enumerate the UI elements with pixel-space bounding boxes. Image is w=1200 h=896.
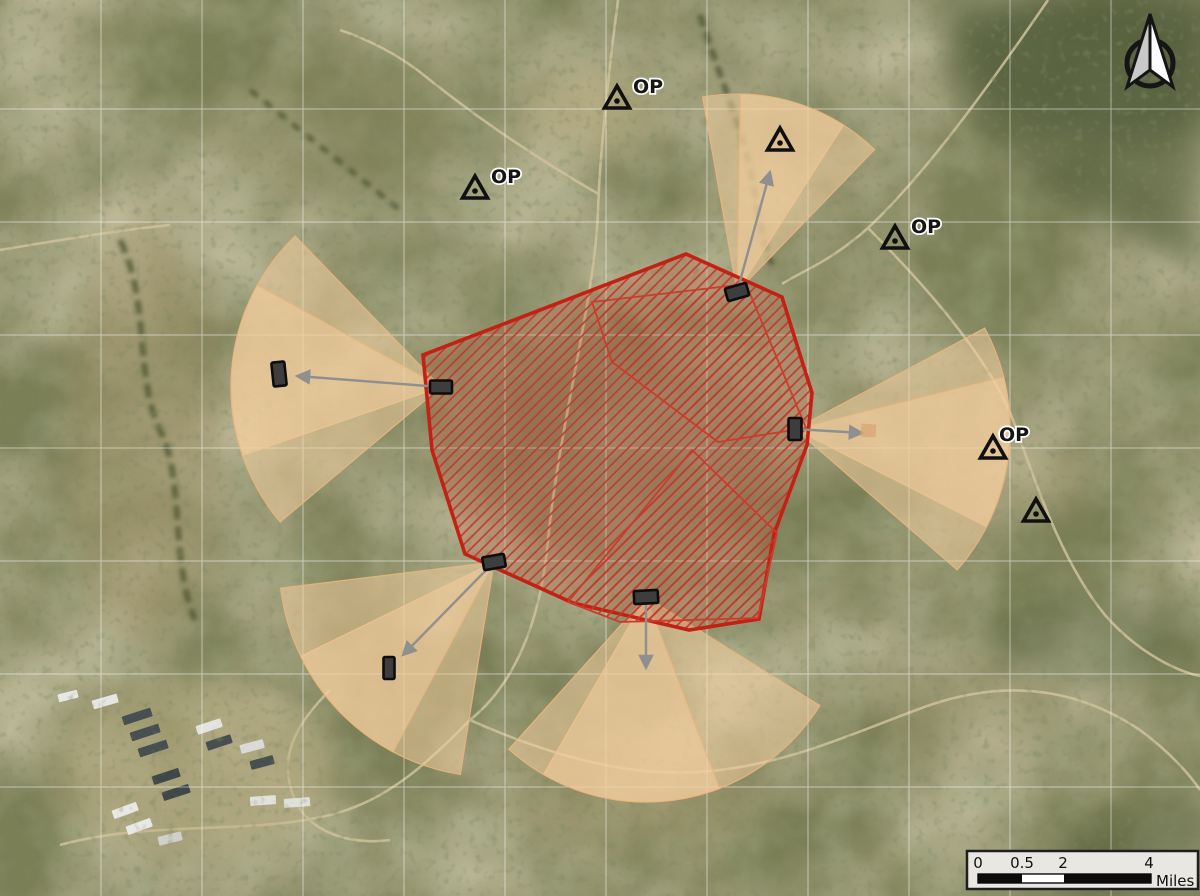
op-triangle-dot — [614, 98, 620, 104]
scale-tick-label: 0.5 — [1010, 854, 1034, 872]
scale-unit-label: Miles — [1156, 872, 1195, 890]
op-triangle-dot — [472, 188, 478, 194]
op-label: OP — [999, 424, 1029, 446]
firing-point-marker — [789, 418, 802, 440]
scale-bar-segment — [978, 874, 1022, 883]
aim-point-square — [861, 424, 877, 438]
target-marker — [384, 657, 395, 679]
firing-point-marker — [634, 590, 659, 604]
op-triangle-dot — [777, 140, 783, 146]
op-label: OP — [911, 216, 941, 238]
scale-tick-label: 4 — [1144, 854, 1154, 872]
firing-point-marker — [482, 554, 506, 571]
map-canvas: OP OP OP OP 0 — [0, 0, 1200, 896]
scale-bar: 0 0.5 2 4 Miles — [967, 851, 1198, 890]
scale-bar-segment — [1022, 874, 1064, 883]
scale-tick-label: 2 — [1058, 854, 1068, 872]
op-triangle-dot — [990, 448, 996, 454]
scale-tick-label: 0 — [973, 854, 983, 872]
map-viewport: OP OP OP OP 0 — [0, 0, 1200, 896]
scale-bar-segment — [1064, 874, 1151, 883]
op-triangle-dot — [892, 238, 898, 244]
firing-point-marker — [430, 381, 452, 394]
target-marker — [271, 361, 286, 386]
op-label: OP — [633, 76, 663, 98]
op-triangle-dot — [1033, 511, 1039, 517]
op-label: OP — [491, 166, 521, 188]
